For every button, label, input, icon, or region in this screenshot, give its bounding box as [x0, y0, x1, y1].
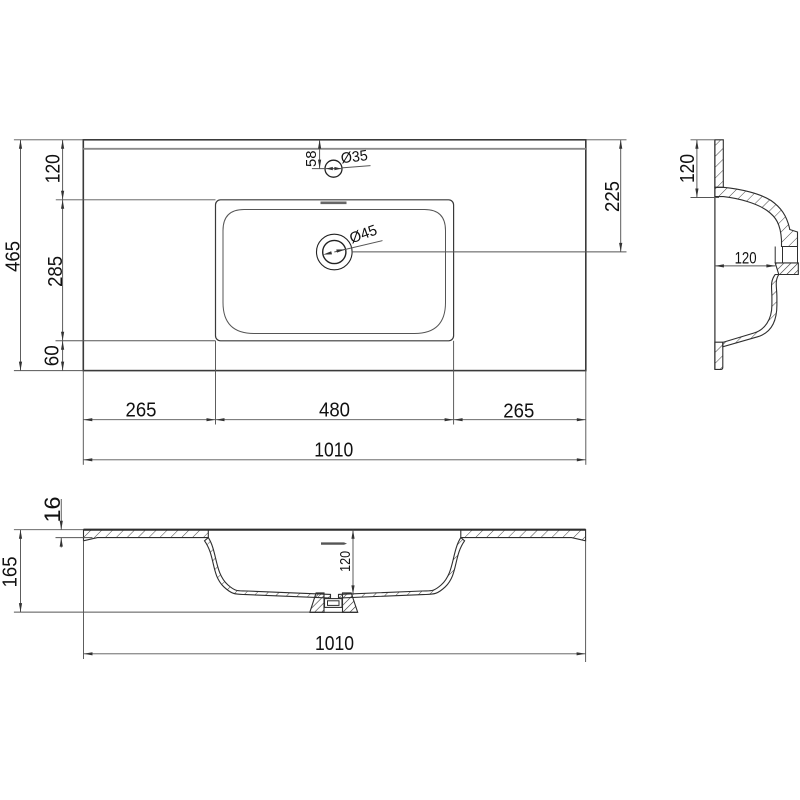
svg-text:225: 225: [601, 181, 624, 212]
svg-text:58: 58: [303, 151, 320, 168]
svg-text:Ø35: Ø35: [340, 147, 369, 167]
svg-text:120: 120: [676, 154, 699, 183]
svg-text:165: 165: [0, 556, 21, 587]
svg-text:285: 285: [44, 256, 67, 287]
svg-text:480: 480: [319, 398, 350, 421]
svg-text:60: 60: [40, 345, 63, 366]
svg-text:16: 16: [40, 497, 65, 523]
svg-text:120: 120: [735, 249, 757, 268]
svg-text:120: 120: [42, 154, 65, 183]
svg-text:120: 120: [337, 551, 354, 572]
svg-text:265: 265: [126, 398, 157, 421]
svg-text:465: 465: [2, 241, 25, 272]
svg-text:265: 265: [503, 399, 534, 422]
svg-text:1010: 1010: [314, 438, 353, 461]
svg-text:1010: 1010: [315, 632, 354, 655]
